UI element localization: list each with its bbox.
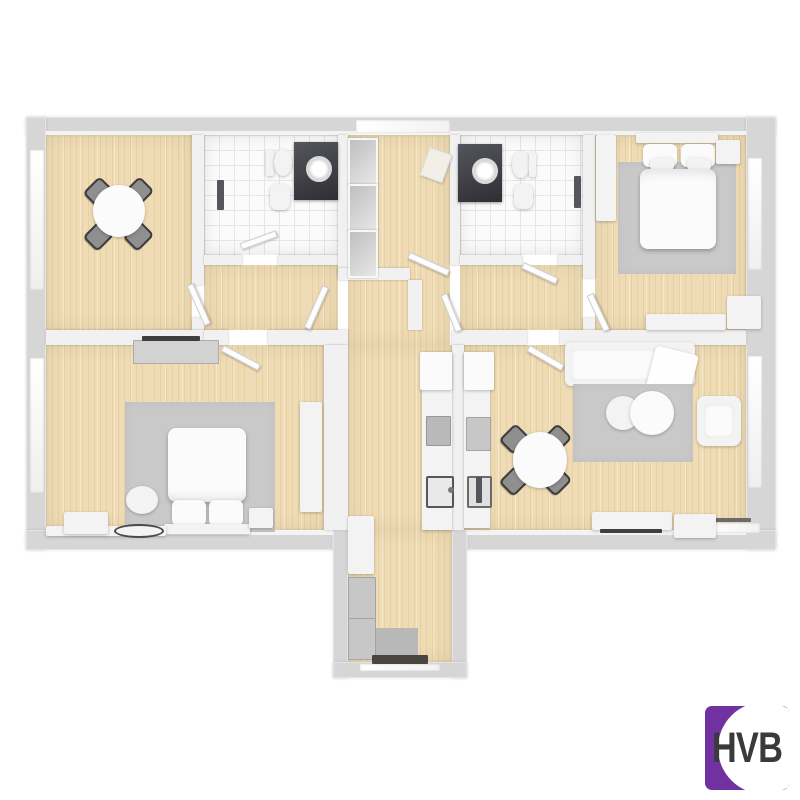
nightstand-bedroom1 [716,140,740,164]
window-living-right [748,356,762,488]
wardrobe-bedroom1 [596,135,616,221]
wall-bedroom2-corridor [324,345,348,530]
bed2-duvet [168,428,246,502]
balcony-threshold [372,655,428,664]
coffee-table-large [630,391,674,435]
kitchen-stove [426,416,451,446]
radiator-bath2 [574,176,581,208]
tv-bedroom2 [142,336,200,341]
radiator-bath1 [217,180,224,210]
toilet-tank-bath1 [266,150,274,176]
sideboard-bedroom1 [646,314,726,330]
dresser-bedroom2 [133,340,219,364]
floor-plan-image: HVB [0,0,800,800]
wardrobe-bedroom2 [300,402,322,512]
wall-under-bath1-b [278,255,338,265]
kitchen-fridge-panel [466,417,491,451]
bidet-bath1 [270,184,290,210]
wall-dining-bath1-upper [192,135,204,285]
bed1-duvet [640,169,716,249]
washer [348,577,376,619]
dryer [348,618,376,660]
wall-hall-stub [408,280,422,330]
hvb-logo: HVB [705,706,789,790]
extension-cabinet [348,516,374,574]
hall-wardrobe-cell [348,184,378,232]
kitchen-faucet [448,487,454,493]
wall-mid-g3 [268,330,348,345]
sink-bath1 [306,156,332,182]
wall-bath2-bedroom1-stub [583,318,595,330]
cabinet-living [674,514,716,538]
bed2-pillow [172,500,206,526]
tv-sideboard [592,512,672,530]
toilet-tank-bath2 [529,152,536,177]
pouf-bedroom2 [126,486,158,514]
oval-mat-bedroom2 [114,524,164,538]
bed2-headboard [164,524,250,534]
corner-unit-bedroom2 [64,512,108,534]
wall-extension-right [452,530,467,678]
nightstand-bedroom2 [249,508,273,528]
extension-gray-mat [376,628,418,658]
dresser-bedroom1 [727,296,761,329]
balcony-door-extension [360,664,440,671]
bed1-headboard [636,133,718,143]
bed2-pillow [209,500,243,526]
radiator-living [476,477,482,503]
toilet-bowl-bath2 [512,151,530,178]
window-dining-left [30,150,44,290]
toilet-bowl-bath1 [274,149,292,176]
wall-under-bath2-a [460,255,522,265]
armchair-seat [704,404,734,438]
wall-mid-g4 [452,330,527,345]
wall-extension-left [333,530,348,678]
living-round-table [513,432,567,488]
window-bedroom2-left [30,358,44,493]
tv-living [600,529,662,533]
wall-under-bath1-a [204,255,242,265]
sink-bath2 [472,158,498,184]
kitchen-tall-cabinet [420,352,452,390]
entrance-door-top [356,120,450,133]
kitchen-cabinet-living-side [464,352,494,390]
window-bedroom1-right [748,158,762,270]
wall-bath2-bedroom1-upper [583,135,595,278]
logo-text: HVB [713,706,780,790]
hall-wardrobe-cell [348,230,378,278]
bidet-bath2 [514,184,533,209]
hall-wardrobe-cell [348,138,378,186]
wall-under-bath2-b [558,255,583,265]
wall-bath1-hall [338,135,348,275]
dining-round-table [93,185,145,237]
floor-corridor-right [460,265,583,330]
